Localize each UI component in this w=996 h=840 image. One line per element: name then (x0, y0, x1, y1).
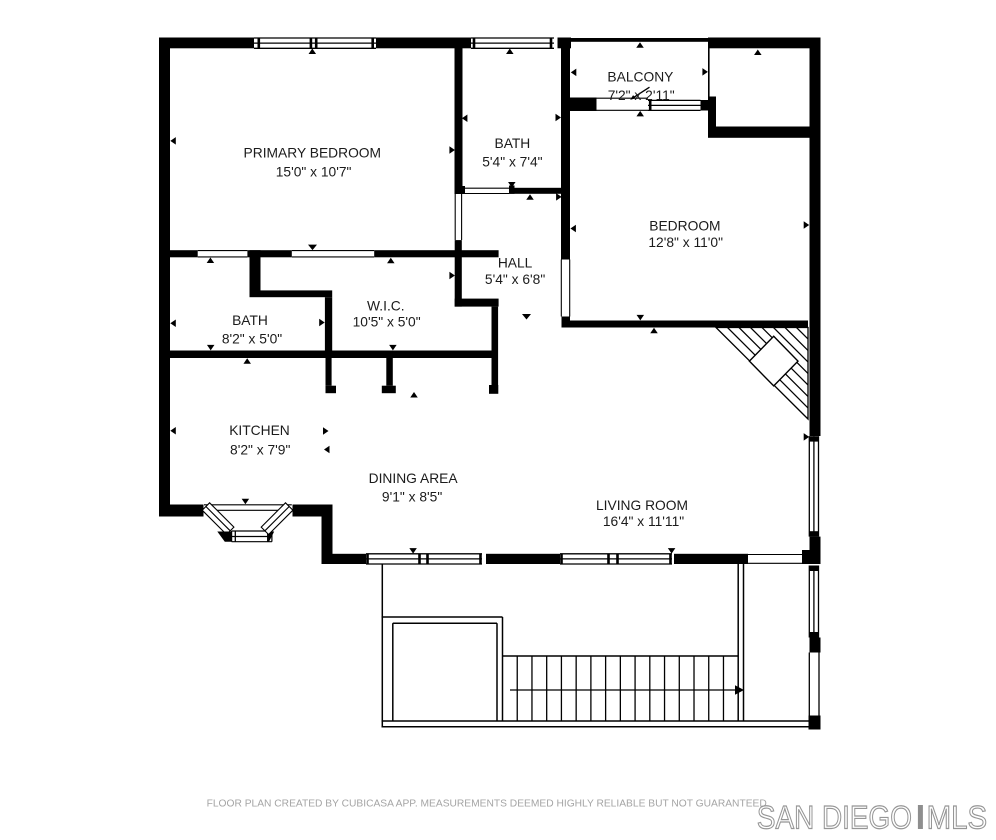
svg-text:BEDROOM: BEDROOM (649, 219, 720, 234)
svg-text:8'2" x 5'0": 8'2" x 5'0" (222, 332, 282, 347)
svg-text:LIVING ROOM: LIVING ROOM (596, 498, 688, 513)
svg-text:BALCONY: BALCONY (607, 70, 673, 85)
svg-text:MLS: MLS (927, 799, 988, 835)
svg-text:5'4" x 6'8": 5'4" x 6'8" (485, 272, 545, 287)
svg-text:PRIMARY BEDROOM: PRIMARY BEDROOM (244, 146, 381, 161)
svg-text:12'8" x 11'0": 12'8" x 11'0" (648, 235, 723, 250)
svg-text:FLOOR PLAN CREATED BY CUBICASA: FLOOR PLAN CREATED BY CUBICASA APP. MEAS… (207, 798, 770, 809)
svg-text:9'1" x 8'5": 9'1" x 8'5" (382, 490, 442, 505)
svg-text:10'5" x 5'0": 10'5" x 5'0" (353, 314, 421, 329)
svg-text:W.I.C.: W.I.C. (367, 298, 405, 313)
svg-text:5'4" x 7'4": 5'4" x 7'4" (482, 154, 542, 169)
svg-text:KITCHEN: KITCHEN (229, 423, 290, 438)
svg-text:15'0" x 10'7": 15'0" x 10'7" (276, 165, 352, 180)
svg-text:7'2" x 2'11": 7'2" x 2'11" (608, 88, 675, 103)
svg-text:HALL: HALL (498, 255, 533, 270)
svg-text:BATH: BATH (232, 313, 268, 328)
svg-text:8'2" x 7'9": 8'2" x 7'9" (230, 442, 290, 457)
svg-text:BATH: BATH (495, 136, 531, 151)
svg-text:16'4" x 11'11": 16'4" x 11'11" (603, 514, 684, 529)
svg-text:SAN DIEGO: SAN DIEGO (757, 799, 912, 835)
svg-text:DINING AREA: DINING AREA (369, 471, 459, 486)
